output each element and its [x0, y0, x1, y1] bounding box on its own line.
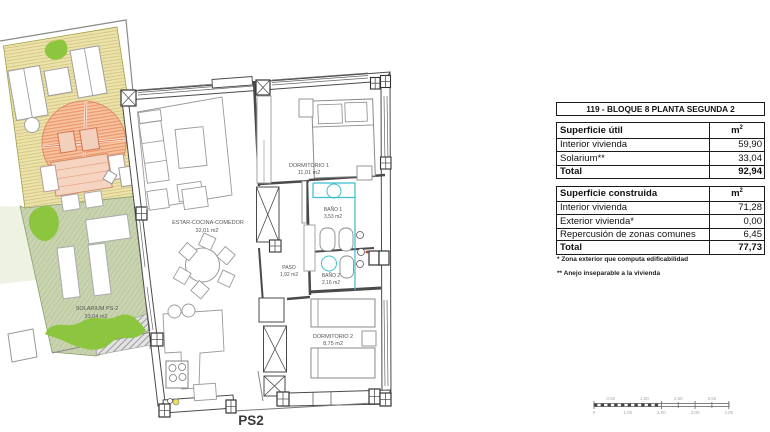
svg-text:32,01 m2: 32,01 m2 [196, 228, 219, 234]
svg-text:1.00: 1.00 [623, 410, 632, 415]
svg-text:1,92 m2: 1,92 m2 [280, 272, 298, 278]
svg-text:3.00: 3.00 [691, 410, 700, 415]
svg-text:2.00: 2.00 [657, 410, 666, 415]
svg-text:1.50: 1.50 [640, 396, 649, 401]
svg-text:11,01 m2: 11,01 m2 [298, 170, 321, 176]
svg-text:3,53 m2: 3,53 m2 [324, 214, 342, 220]
svg-text:BAÑO 1: BAÑO 1 [324, 206, 343, 213]
svg-text:SOLARIUM PS-2: SOLARIUM PS-2 [76, 306, 118, 312]
svg-text:PASO: PASO [282, 265, 296, 271]
svg-text:PS2: PS2 [238, 413, 264, 428]
svg-text:0: 0 [593, 410, 596, 415]
svg-text:BAÑO 2: BAÑO 2 [322, 272, 341, 279]
svg-text:0.50: 0.50 [606, 396, 615, 401]
svg-text:4.00: 4.00 [724, 410, 733, 415]
svg-text:2.50: 2.50 [674, 396, 683, 401]
svg-text:33,04 m2: 33,04 m2 [85, 314, 108, 320]
svg-text:DORMITORIO 1: DORMITORIO 1 [289, 163, 329, 169]
svg-text:2,16 m2: 2,16 m2 [322, 280, 340, 286]
svg-text:ESTAR-COCINA-COMEDOR: ESTAR-COCINA-COMEDOR [172, 220, 244, 226]
svg-text:8,75 m2: 8,75 m2 [323, 341, 343, 347]
svg-text:3.50: 3.50 [708, 396, 717, 401]
svg-text:DORMITORIO 2: DORMITORIO 2 [313, 334, 353, 340]
